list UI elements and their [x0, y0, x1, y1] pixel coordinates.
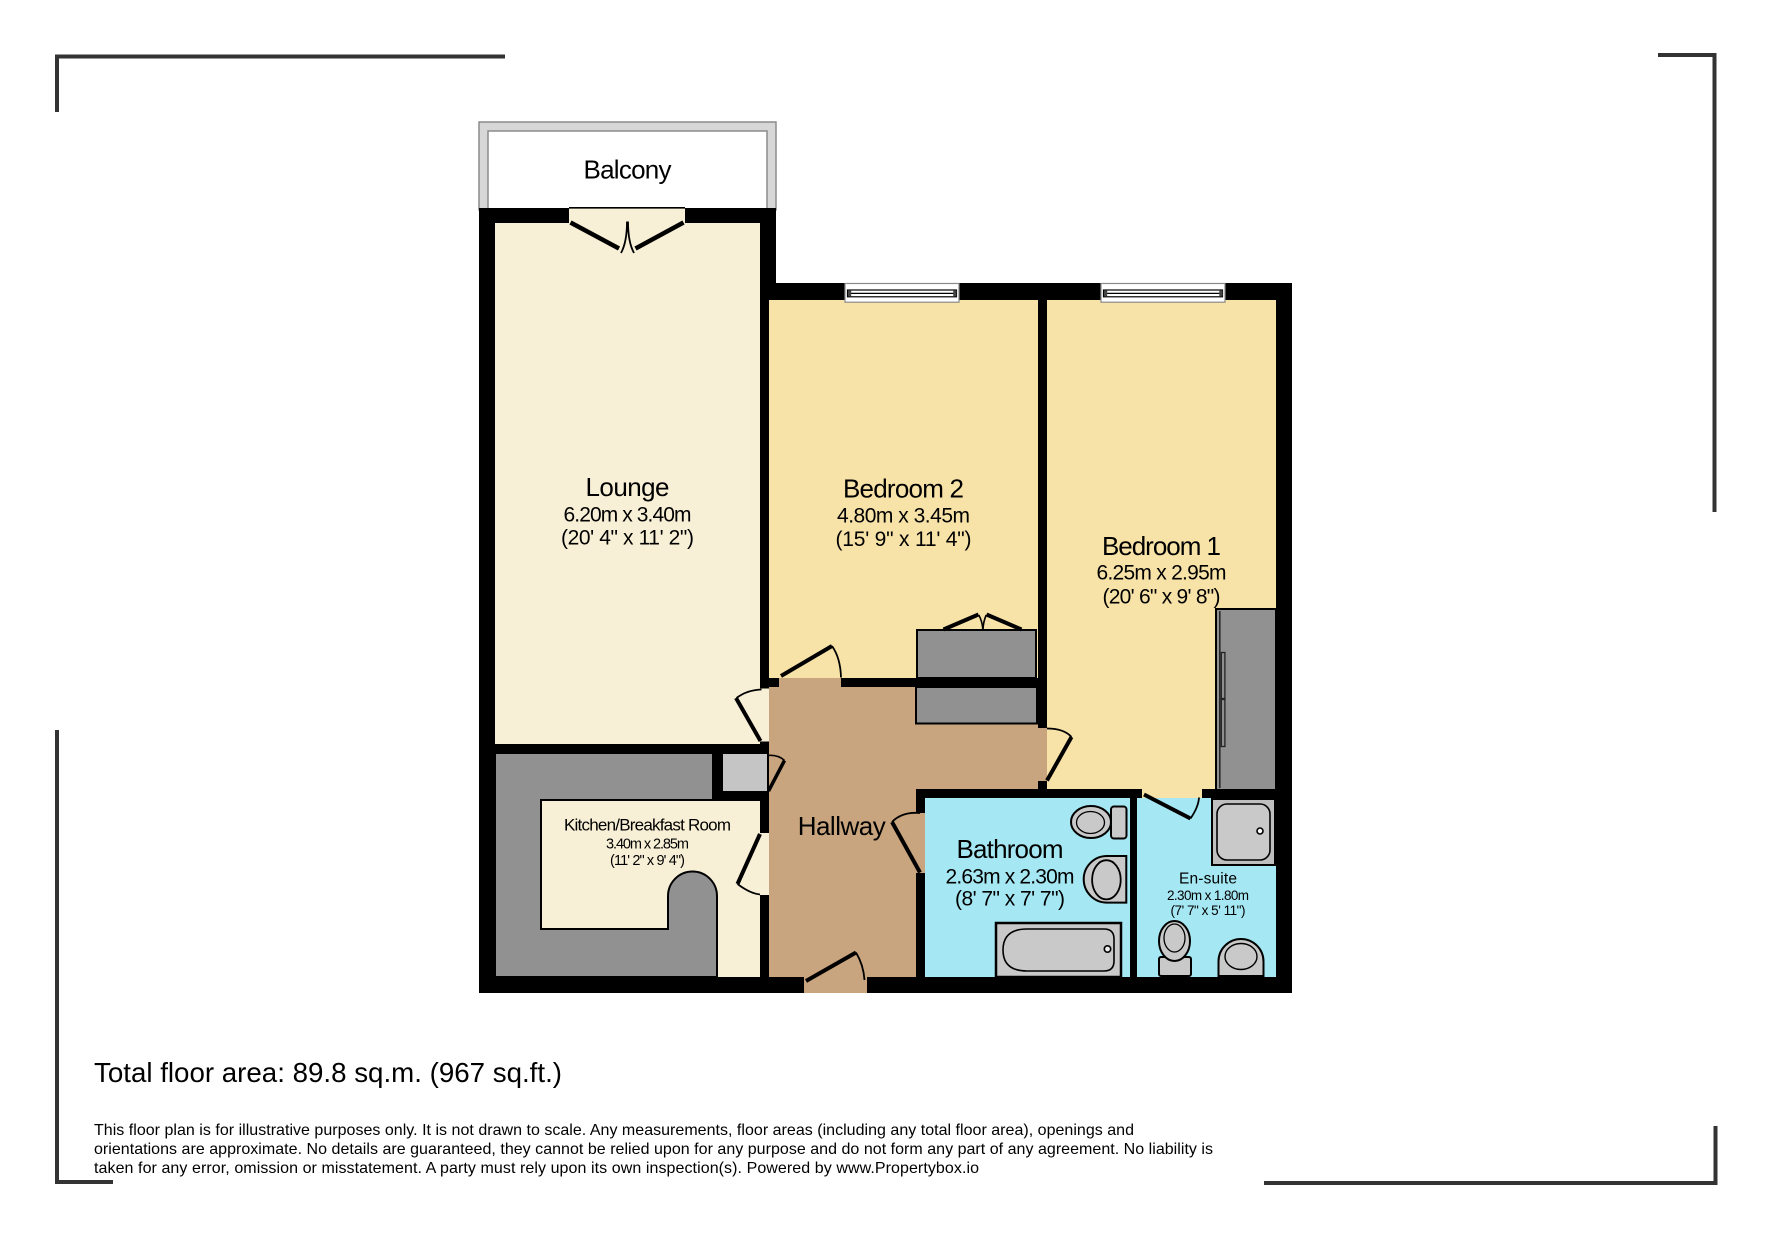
svg-text:4.80m x 3.45m: 4.80m x 3.45m [837, 505, 970, 528]
svg-text:6.20m x 3.40m: 6.20m x 3.40m [564, 504, 692, 527]
svg-text:taken for any error, omission: taken for any error, omission or misstat… [94, 1160, 979, 1177]
svg-text:Kitchen/Breakfast Room: Kitchen/Breakfast Room [564, 816, 731, 835]
svg-text:orientations are approximate.: orientations are approximate. No details… [94, 1141, 1213, 1158]
svg-text:This floor plan is for illustr: This floor plan is for illustrative purp… [94, 1122, 1134, 1139]
svg-text:(20' 6" x 9' 8"): (20' 6" x 9' 8") [1103, 586, 1221, 609]
svg-text:3.40m x 2.85m: 3.40m x 2.85m [606, 837, 689, 853]
svg-text:6.25m x 2.95m: 6.25m x 2.95m [1097, 562, 1227, 585]
svg-text:(7' 7" x 5' 11"): (7' 7" x 5' 11") [1171, 903, 1246, 918]
svg-text:(8' 7" x 7' 7"): (8' 7" x 7' 7") [955, 888, 1065, 911]
svg-text:(11' 2" x 9' 4"): (11' 2" x 9' 4") [610, 853, 685, 869]
svg-text:Total floor area: 89.8 sq.m. (: Total floor area: 89.8 sq.m. (967 sq.ft.… [94, 1057, 562, 1088]
svg-text:En-suite: En-suite [1179, 871, 1237, 888]
svg-text:(20' 4" x 11' 2"): (20' 4" x 11' 2") [561, 527, 694, 550]
svg-text:Bedroom 1: Bedroom 1 [1102, 531, 1221, 561]
svg-text:Bathroom: Bathroom [957, 834, 1064, 864]
svg-text:2.63m x 2.30m: 2.63m x 2.30m [946, 866, 1075, 889]
svg-text:Bedroom 2: Bedroom 2 [843, 474, 964, 504]
svg-text:Balcony: Balcony [584, 155, 672, 185]
svg-text:Lounge: Lounge [586, 472, 670, 502]
svg-text:2.30m x 1.80m: 2.30m x 1.80m [1167, 888, 1249, 903]
svg-text:Hallway: Hallway [798, 811, 886, 841]
svg-text:(15' 9" x 11' 4"): (15' 9" x 11' 4") [836, 528, 972, 551]
